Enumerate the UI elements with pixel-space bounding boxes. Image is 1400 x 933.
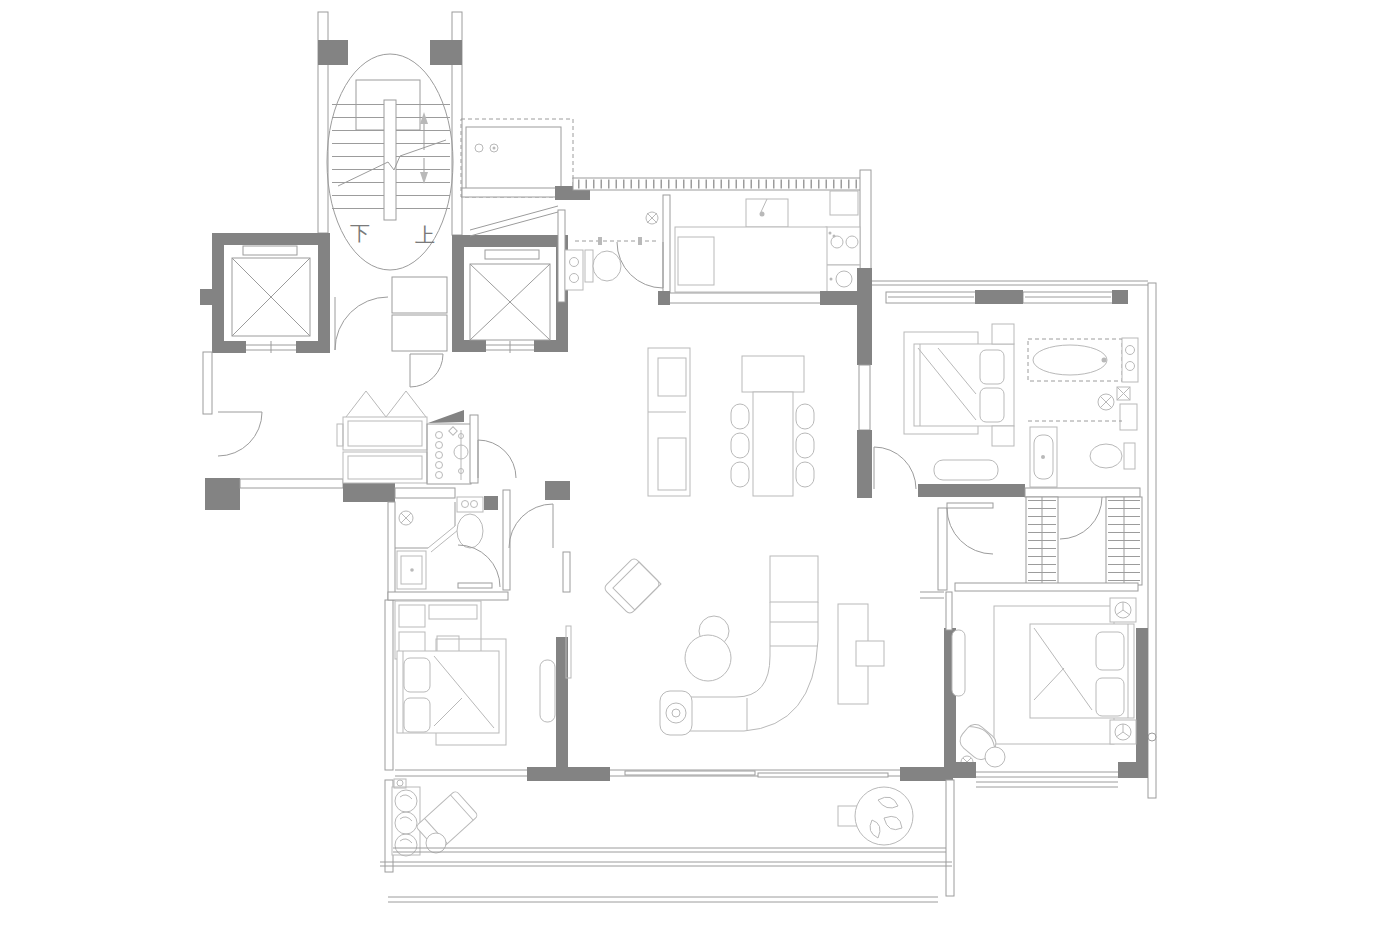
shower: [395, 502, 458, 552]
foyer-wall: [470, 415, 478, 483]
stair-wall-block: [318, 40, 348, 65]
wall: [563, 552, 570, 592]
shoe-cabinet: [343, 417, 427, 450]
door-leaf: [947, 503, 993, 508]
bench: [952, 630, 965, 696]
washer-column: [1122, 338, 1138, 382]
tall-cabinet: [648, 348, 690, 496]
dining-area: [648, 348, 814, 496]
dining-table: [753, 392, 793, 496]
toilet-bowl: [1090, 444, 1122, 468]
west-hall: [503, 490, 570, 592]
elevator-indicator: [485, 250, 539, 259]
sliding-door-leaf: [625, 771, 755, 775]
sideboard: [742, 356, 804, 392]
toilet-tank: [1124, 443, 1135, 469]
pillow: [980, 388, 1004, 422]
duct-cabinet: [392, 315, 447, 351]
pillow: [1096, 632, 1124, 670]
elevator-left: [200, 233, 330, 353]
living-room: [603, 556, 884, 735]
stairwell: 下 上: [318, 12, 462, 350]
elevator-right: [452, 235, 568, 353]
closet-door-swing: [478, 440, 516, 478]
cabinet: [1120, 404, 1137, 430]
wall: [860, 170, 871, 270]
armchair: [603, 557, 661, 615]
pocket-door: [946, 592, 952, 630]
platform-outline: [461, 119, 573, 197]
pillow: [980, 350, 1004, 384]
entry-door-swing: [218, 412, 262, 456]
toilet-tank: [457, 497, 483, 512]
stair-spine: [384, 100, 396, 220]
stair-wall-block: [430, 40, 462, 65]
door-swing: [617, 242, 663, 288]
wall: [503, 490, 510, 590]
wall: [663, 195, 670, 293]
door-swing: [458, 545, 500, 587]
west-wall: [385, 600, 393, 770]
sofa: [660, 556, 818, 735]
floorplan-canvas: 下 上: [0, 0, 1400, 933]
shoe-cabinet-decor: [346, 391, 426, 417]
foyer: [337, 391, 516, 484]
bathroom-west: [388, 488, 500, 600]
elevator-lobby: [392, 277, 447, 387]
nightstand-lamp: [1110, 720, 1136, 744]
wall: [388, 502, 395, 600]
bathtub: [1033, 345, 1107, 375]
door-leaf: [458, 583, 492, 588]
meter-manifold: [436, 427, 469, 480]
toilet-tank: [585, 250, 593, 282]
tv: [856, 641, 884, 666]
outdoor-table: [426, 833, 446, 853]
door-swing: [1060, 497, 1102, 539]
door-swing: [509, 504, 553, 548]
shoe-cabinet: [343, 452, 427, 483]
door-swing: [874, 447, 916, 489]
walk-in-closet: [1026, 497, 1142, 585]
north-wall: [955, 583, 1138, 591]
service-platform: [461, 119, 590, 236]
kitchen: [573, 170, 871, 305]
powder-room: [558, 195, 670, 302]
suite-corridor: [938, 503, 993, 590]
floor-plan: 下 上: [0, 0, 1400, 933]
balcony-east-wall: [946, 780, 954, 896]
pillow: [404, 658, 430, 692]
duct-cabinet: [392, 277, 447, 313]
wall-wedge: [428, 410, 464, 423]
stair-up-label: 上: [415, 223, 435, 247]
nightstand: [992, 324, 1014, 344]
sliding-door-leaf: [758, 773, 888, 777]
chaise: [770, 556, 818, 602]
tub-faucet: [1102, 358, 1107, 363]
door-swing: [947, 508, 993, 554]
toilet-bowl: [593, 251, 621, 281]
elevator-indicator: [243, 246, 297, 255]
toilet-bowl: [457, 514, 483, 548]
bedroom-south-west: [385, 592, 571, 770]
bench: [934, 460, 998, 480]
stair-down-label: 下: [350, 221, 370, 245]
potted-plant: [838, 787, 913, 845]
fridge: [830, 191, 858, 215]
wall: [558, 210, 565, 302]
pillow: [404, 698, 430, 732]
bedroom-south-east: [920, 583, 1148, 787]
north-wall: [388, 592, 508, 600]
entry-door: [410, 354, 443, 387]
cabinet-handle: [337, 424, 343, 446]
stair-lobby-door: [335, 297, 388, 350]
kitchen-south-wall: [668, 293, 823, 303]
kitchen-sink: [746, 199, 788, 227]
balcony: [380, 767, 954, 902]
nightstand-lamp: [1110, 598, 1136, 622]
pillow: [1096, 678, 1124, 716]
nightstand: [992, 426, 1014, 446]
side-table: [985, 747, 1005, 767]
planter-rack: [392, 779, 420, 856]
bath-south-wall: [1025, 488, 1140, 497]
sofa-armrest: [660, 691, 692, 735]
wall-nub: [200, 289, 212, 305]
wall: [938, 508, 947, 590]
coffee-table: [685, 635, 731, 681]
bench: [540, 660, 555, 722]
wall: [395, 488, 455, 498]
wardrobe: [395, 601, 481, 659]
utility-panel: [427, 424, 471, 484]
outdoor-lounge-chair: [416, 790, 479, 851]
washbasin: [565, 250, 583, 290]
east-wall: [1148, 283, 1156, 798]
